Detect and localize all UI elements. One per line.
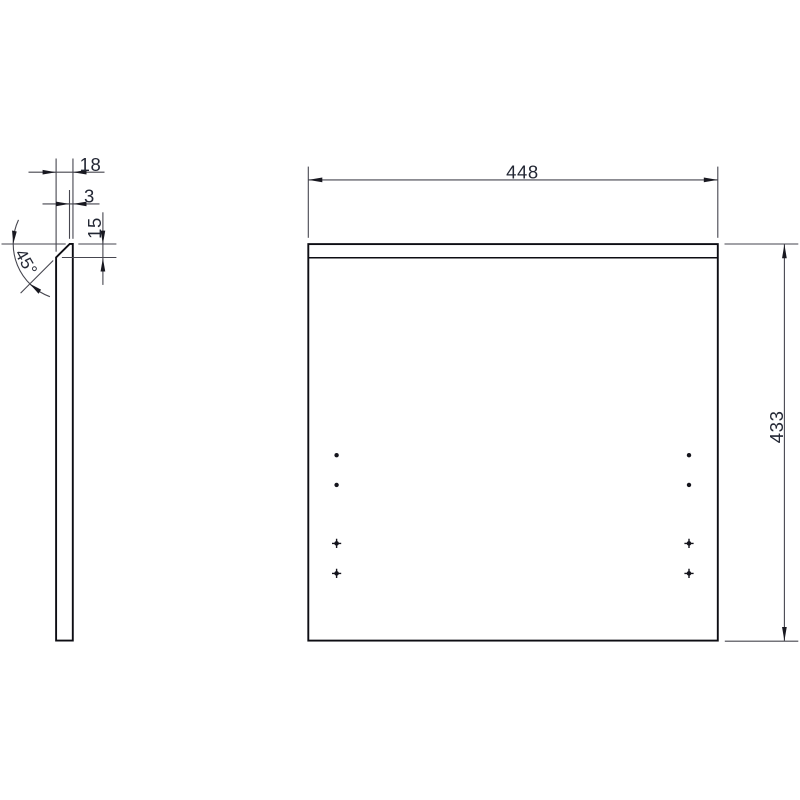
svg-text:18: 18 (80, 154, 102, 175)
svg-text:15: 15 (84, 217, 105, 239)
svg-text:433: 433 (766, 411, 787, 444)
svg-text:3: 3 (84, 185, 95, 206)
svg-text:448: 448 (506, 161, 539, 182)
